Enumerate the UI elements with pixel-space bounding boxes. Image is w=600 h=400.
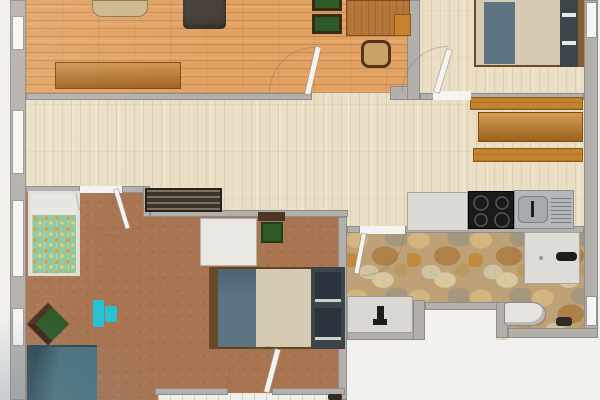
teal-sofa xyxy=(27,345,97,400)
desk-green-chair xyxy=(261,222,283,243)
desk-slab xyxy=(258,212,285,221)
exterior-wall-right xyxy=(584,0,598,332)
wall-living-hall xyxy=(26,93,312,100)
kitchen-counter xyxy=(407,192,468,231)
outside-right-lower xyxy=(508,338,600,400)
cyan-toy-block xyxy=(105,306,117,322)
wardrobe-strip-1 xyxy=(470,97,583,110)
window-right-1 xyxy=(586,2,597,38)
shower-fixture xyxy=(556,252,577,261)
wall-notch-top xyxy=(425,302,500,310)
window-left-4 xyxy=(12,308,24,346)
floral-bed-duvet xyxy=(32,215,76,273)
shelf-slot-1 xyxy=(562,13,576,17)
shower-drain xyxy=(539,256,543,260)
bed-foot-shelf-slot-2 xyxy=(315,308,341,340)
beige-table xyxy=(92,0,148,17)
sink-faucet xyxy=(531,201,534,217)
hall-bench xyxy=(145,188,222,212)
wall-kids-bottom-a xyxy=(155,388,228,395)
wall-notch-left xyxy=(413,300,425,340)
toilet-brush xyxy=(556,317,572,326)
bed-bottom-teal-blanket xyxy=(218,269,256,347)
bed-bottom-headboard xyxy=(209,267,218,349)
shelf-wood-side xyxy=(578,0,584,67)
wardrobe-strip-2 xyxy=(473,148,583,162)
green-chair-1 xyxy=(312,0,342,11)
window-left-1 xyxy=(12,16,24,50)
dark-sofa xyxy=(183,0,226,29)
white-desk xyxy=(200,218,257,266)
toilet xyxy=(504,302,546,326)
wall-shelf xyxy=(394,14,411,36)
door-threshold-bath xyxy=(360,226,405,234)
outside-notch xyxy=(425,310,496,340)
shelf-unit-top xyxy=(560,0,578,67)
wall-bath-top-a xyxy=(347,226,360,233)
wicker-chair xyxy=(361,40,391,68)
floor-plan-photo xyxy=(0,0,600,400)
wall-bath-bottom-right xyxy=(508,328,598,338)
cooktop xyxy=(468,191,514,229)
wardrobe-block xyxy=(478,112,583,142)
sideboard xyxy=(55,62,181,89)
cyan-toy-bar xyxy=(93,300,104,327)
basin-faucet-base xyxy=(373,319,387,325)
window-right-2 xyxy=(586,296,597,326)
green-chair-2 xyxy=(312,14,342,34)
sink-drainboard xyxy=(551,196,571,223)
window-left-3 xyxy=(12,200,24,277)
shelf-slot-2 xyxy=(562,41,576,45)
window-left-2 xyxy=(12,110,24,174)
bed-top-teal-blanket xyxy=(484,2,515,64)
bed-foot-shelf-slot-1 xyxy=(315,272,341,302)
bottom-dark-item xyxy=(328,394,342,400)
